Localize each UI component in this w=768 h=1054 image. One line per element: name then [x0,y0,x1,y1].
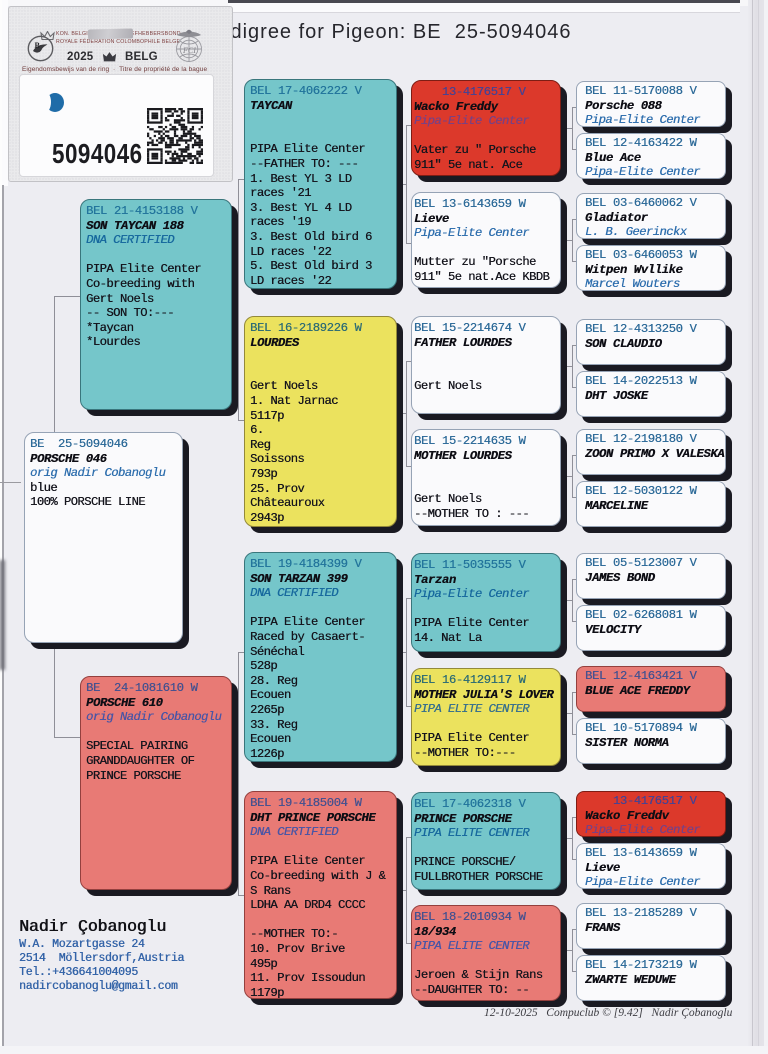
svg-text:FCI: FCI [182,46,196,55]
svg-text:B: B [35,41,41,50]
